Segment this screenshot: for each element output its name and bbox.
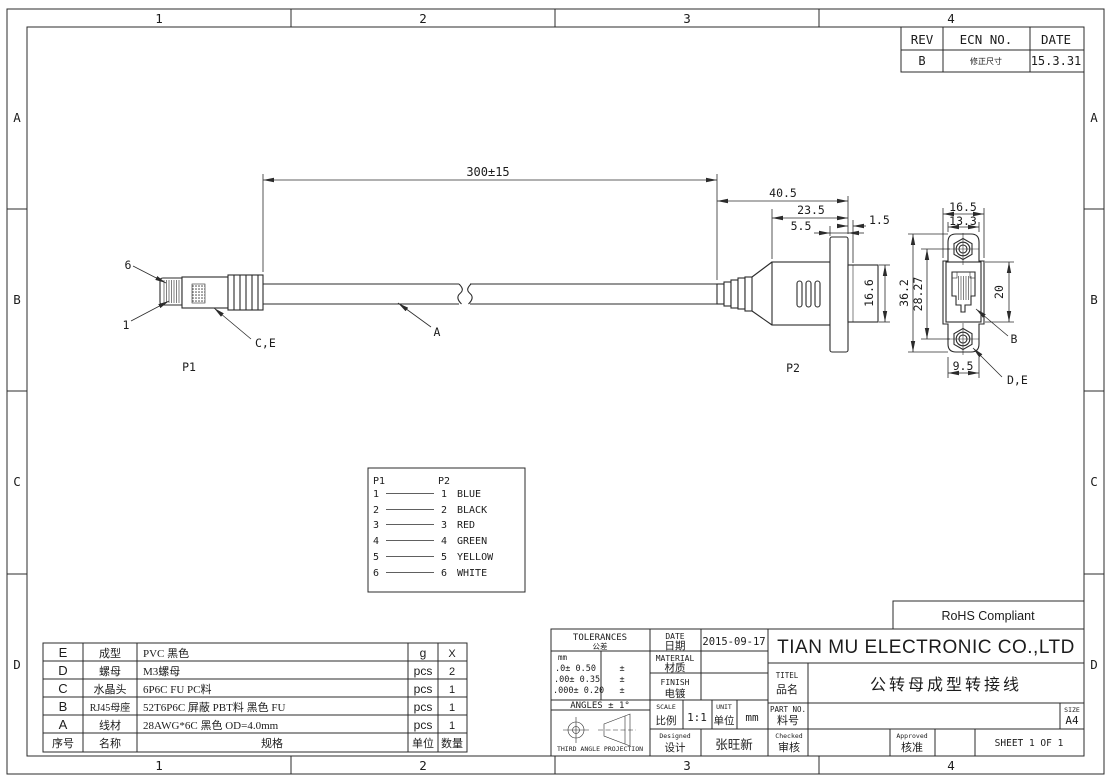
bom-row: D 螺母 M3螺母 pcs 2 (58, 663, 455, 678)
revision-table: REV ECN NO. DATE B 修正尺寸 15.3.31 (901, 27, 1084, 72)
svg-text:5.5: 5.5 (791, 219, 812, 233)
pin6-label: 6 (125, 258, 132, 272)
svg-text:日期: 日期 (665, 640, 686, 652)
svg-text:.0± 0.50: .0± 0.50 (555, 664, 596, 674)
p2-side-view: P2 40.5 23.5 5.5 1.5 16.6 (717, 186, 890, 375)
svg-text:线材: 线材 (99, 718, 121, 732)
svg-text:2: 2 (441, 505, 447, 516)
svg-text:单位: 单位 (412, 736, 434, 750)
svg-text:M3螺母: M3螺母 (143, 665, 180, 678)
svg-text:52T6P6C 屏蔽 PBT料 黑色 FU: 52T6P6C 屏蔽 PBT料 黑色 FU (143, 700, 285, 714)
svg-text:±: ± (619, 686, 624, 696)
bom-table: E 成型 PVC 黑色 g X D 螺母 M3螺母 pcs 2 C 水晶头 6P… (43, 643, 467, 752)
part-title: 公转母成型转接线 (870, 676, 1022, 694)
zone-col-label: 1 (155, 11, 163, 26)
bom-row: B RJ45母座 52T6P6C 屏蔽 PBT料 黑色 FU pcs 1 (59, 699, 455, 714)
svg-text:YELLOW: YELLOW (457, 552, 494, 563)
svg-text:RoHS Compliant: RoHS Compliant (941, 609, 1035, 623)
svg-text:pcs: pcs (414, 700, 433, 714)
wiring-row: 1 1 BLUE (373, 489, 481, 500)
svg-text:设计: 设计 (665, 741, 686, 754)
zone-row-label: D (1090, 657, 1098, 672)
svg-text:Checked: Checked (775, 732, 802, 740)
svg-text:材质: 材质 (665, 661, 686, 674)
svg-text:±: ± (619, 675, 624, 685)
svg-text:16.6: 16.6 (862, 279, 876, 307)
svg-text:5: 5 (373, 552, 379, 563)
wiring-row: 6 6 WHITE (373, 568, 487, 579)
svg-text:成型: 成型 (99, 646, 121, 660)
svg-text:13.3: 13.3 (949, 214, 977, 228)
zone-col-label: 4 (947, 758, 955, 773)
svg-text:THIRD ANGLE PROJECTION: THIRD ANGLE PROJECTION (557, 745, 643, 753)
svg-text:UNIT: UNIT (716, 703, 732, 711)
rev-header: REV (911, 32, 934, 47)
dim-front-height: 20 (985, 262, 1014, 322)
svg-text:9.5: 9.5 (953, 359, 974, 373)
zone-row-label: A (13, 110, 21, 125)
svg-text:Approved: Approved (896, 732, 927, 740)
ref-ce-label: C,E (255, 336, 276, 350)
svg-text:1.5: 1.5 (869, 213, 890, 227)
zone-col-label: 2 (419, 758, 427, 773)
svg-text:1: 1 (449, 702, 455, 714)
svg-text:公差: 公差 (593, 641, 608, 651)
svg-text:RED: RED (457, 520, 475, 531)
svg-text:BLUE: BLUE (457, 489, 481, 500)
svg-text:1:1: 1:1 (687, 711, 707, 724)
svg-text:SCALE: SCALE (656, 703, 676, 711)
svg-text:FINISH: FINISH (661, 678, 690, 687)
svg-text:300±15: 300±15 (466, 165, 509, 179)
svg-text:pcs: pcs (414, 664, 433, 678)
svg-text:X: X (448, 648, 456, 660)
svg-text:A4: A4 (1065, 714, 1079, 727)
zone-col-label: 3 (683, 758, 691, 773)
wiring-diagram: P1 P2 1 1 BLUE 2 2 BLACK 3 3 RED 4 4 GRE… (368, 468, 525, 592)
svg-text:PART NO.: PART NO. (770, 705, 806, 714)
svg-text:1: 1 (373, 489, 379, 500)
ref-a-label: A (434, 325, 441, 339)
svg-text:螺母: 螺母 (99, 665, 121, 678)
svg-text:±: ± (619, 664, 624, 674)
zone-row-label: D (13, 657, 21, 672)
svg-text:C: C (58, 681, 67, 696)
svg-text:水晶头: 水晶头 (94, 683, 127, 696)
wiring-row: 2 2 BLACK (373, 505, 487, 516)
svg-text:B: B (59, 699, 68, 714)
svg-text:1: 1 (449, 684, 455, 696)
cable: A 300±15 (263, 165, 717, 339)
p1-connector: 6 1 C,E P1 (123, 258, 276, 374)
svg-text:核准: 核准 (901, 740, 923, 754)
wiring-row: 5 5 YELLOW (373, 552, 494, 563)
svg-text:pcs: pcs (414, 718, 433, 732)
svg-text:TITEL: TITEL (776, 671, 799, 680)
drawing-sheet: 1 2 3 4 1 2 3 4 A B C D A B C D REV ECN … (0, 0, 1111, 783)
finish-cell: FINISH 电镀 (661, 678, 690, 700)
datum-target-icon (563, 717, 589, 743)
dim-top-width: 13.3 (948, 214, 979, 232)
svg-text:MATERIAL: MATERIAL (656, 654, 695, 663)
wiring-row: 4 4 GREEN (373, 536, 487, 547)
company-name: TIAN MU ELECTRONIC CO.,LTD (777, 637, 1075, 658)
svg-text:23.5: 23.5 (797, 203, 825, 217)
svg-text:GREEN: GREEN (457, 536, 487, 547)
scale-cell: SCALE 比例 1:1 UNIT 单位 mm (656, 703, 759, 727)
sheet-number: SHEET 1 OF 1 (995, 738, 1064, 749)
zone-row-label: C (13, 474, 21, 489)
svg-text:.00± 0.35: .00± 0.35 (554, 675, 600, 685)
zone-row-label: A (1090, 110, 1098, 125)
svg-text:名称: 名称 (99, 736, 121, 750)
p2-label: P2 (786, 361, 800, 375)
third-angle-projection-icon (598, 714, 636, 746)
rev-date-value: 15.3.31 (1031, 54, 1082, 68)
dim-overall: 40.5 (717, 186, 848, 234)
svg-text:DATE: DATE (665, 632, 684, 641)
zone-col-label: 3 (683, 11, 691, 26)
bom-row: E 成型 PVC 黑色 g X (59, 645, 457, 660)
ref-de-label: D,E (1007, 373, 1028, 387)
svg-text:E: E (59, 645, 68, 660)
svg-text:SIZE: SIZE (1064, 706, 1080, 714)
designed-cell: Designed 设计 张旺新 (659, 732, 752, 754)
svg-text:BLACK: BLACK (457, 505, 487, 516)
p1-label: P1 (182, 360, 196, 374)
zone-row-label: B (13, 292, 21, 307)
svg-text:1: 1 (449, 720, 455, 732)
zone-col-label: 4 (947, 11, 955, 26)
svg-text:pcs: pcs (414, 682, 433, 696)
svg-text:PVC 黑色: PVC 黑色 (143, 646, 189, 660)
zone-col-label: 2 (419, 11, 427, 26)
svg-text:品名: 品名 (776, 682, 798, 696)
svg-text:28AWG*6C 黑色 OD=4.0mm: 28AWG*6C 黑色 OD=4.0mm (143, 718, 279, 732)
svg-text:D: D (58, 663, 67, 678)
svg-text:6: 6 (373, 568, 379, 579)
svg-text:.000± 0.20: .000± 0.20 (553, 686, 604, 696)
svg-text:6: 6 (441, 568, 447, 579)
zone-row-label: C (1090, 474, 1098, 489)
svg-text:3: 3 (373, 520, 379, 531)
zone-col-label: 1 (155, 758, 163, 773)
pin1-label: 1 (123, 318, 130, 332)
partno-cell: PART NO. 料号 SIZE A4 (770, 705, 1080, 727)
bom-row: C 水晶头 6P6C FU PC料 pcs 1 (58, 681, 455, 696)
dim-bottom-width: 9.5 (948, 357, 979, 378)
ref-b-label: B (1011, 332, 1018, 346)
wiring-p1-header: P1 (373, 476, 385, 487)
ecn-header: ECN NO. (960, 32, 1013, 47)
svg-text:5: 5 (441, 552, 447, 563)
svg-text:40.5: 40.5 (769, 186, 797, 200)
checked-cell: Checked 审核 Approved 核准 SHEET 1 OF 1 (775, 732, 1063, 754)
svg-text:mm: mm (558, 653, 568, 662)
svg-text:WHITE: WHITE (457, 568, 487, 579)
date-cell: DATE 日期 2015-09-17 (665, 632, 766, 652)
svg-text:规格: 规格 (261, 736, 283, 750)
ecn-value: 修正尺寸 (970, 56, 1002, 66)
svg-text:Designed: Designed (659, 732, 690, 740)
material-cell: MATERIAL 材质 (656, 654, 695, 674)
dim-cable-length: 300±15 (263, 165, 717, 280)
svg-text:4: 4 (373, 536, 379, 547)
svg-text:6P6C FU PC料: 6P6C FU PC料 (143, 682, 211, 696)
wiring-p2-header: P2 (438, 476, 450, 487)
title-block: TOLERANCES 公差 mm .0± 0.50 ± .00± 0.35 ± … (551, 601, 1084, 756)
svg-text:16.5: 16.5 (949, 200, 977, 214)
rev-value: B (918, 54, 925, 68)
svg-text:A: A (59, 717, 68, 732)
bom-row: A 线材 28AWG*6C 黑色 OD=4.0mm pcs 1 (59, 717, 455, 732)
svg-text:料号: 料号 (777, 713, 799, 727)
svg-text:3: 3 (441, 520, 447, 531)
svg-text:36.2: 36.2 (897, 279, 911, 307)
svg-text:审核: 审核 (778, 740, 800, 754)
svg-text:电镀: 电镀 (665, 687, 686, 700)
jack-front-view: 16.5 13.3 36.2 28.27 20 (897, 200, 1028, 387)
wiring-row: 3 3 RED (373, 520, 475, 531)
titel-cell: TITEL 品名 公转母成型转接线 (776, 671, 1022, 696)
bom-header-row: 序号 名称 规格 单位 数量 (52, 736, 463, 750)
svg-text:2: 2 (373, 505, 379, 516)
svg-text:序号: 序号 (52, 736, 74, 750)
svg-text:2: 2 (449, 666, 455, 678)
svg-text:4: 4 (441, 536, 447, 547)
svg-text:RJ45母座: RJ45母座 (90, 701, 131, 714)
svg-text:数量: 数量 (441, 737, 463, 750)
svg-text:2015-09-17: 2015-09-17 (702, 636, 765, 648)
rohs-badge: RoHS Compliant (893, 601, 1084, 629)
svg-text:单位: 单位 (714, 714, 735, 727)
svg-text:28.27: 28.27 (911, 277, 925, 312)
svg-text:ANGLES ± 1°: ANGLES ± 1° (570, 701, 630, 711)
svg-text:mm: mm (745, 711, 759, 724)
svg-text:20: 20 (992, 285, 1006, 299)
svg-text:1: 1 (441, 489, 447, 500)
date-header: DATE (1041, 32, 1071, 47)
p1-contacts (164, 280, 179, 303)
svg-text:g: g (420, 646, 427, 660)
svg-text:比例: 比例 (656, 714, 677, 727)
svg-text:张旺新: 张旺新 (715, 737, 753, 752)
zone-row-label: B (1090, 292, 1098, 307)
